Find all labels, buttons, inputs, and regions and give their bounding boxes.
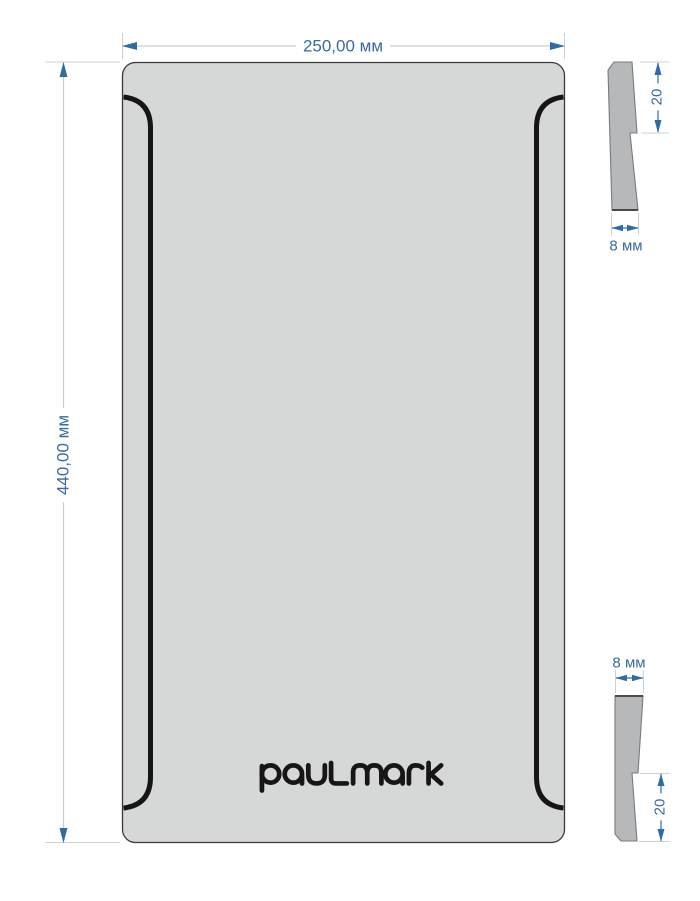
arrow-width-left bbox=[122, 42, 137, 50]
arrow-top-lip-down bbox=[655, 120, 662, 133]
arrow-height-bottom bbox=[60, 828, 68, 843]
arrow-bot-thick-left bbox=[616, 675, 628, 681]
technical-drawing-canvas: 250,00 мм 440,00 мм 20 8 мм 8 мм 20 paul… bbox=[0, 0, 700, 901]
bottom-profile-thickness-dimension-label: 8 мм bbox=[607, 655, 650, 672]
arrow-top-lip-up bbox=[655, 62, 662, 75]
arrow-width-right bbox=[550, 42, 565, 50]
plate-width-dimension-label: 250,00 мм bbox=[296, 36, 390, 57]
plate-outline bbox=[123, 63, 565, 843]
profile-bottom-right bbox=[615, 696, 643, 841]
top-profile-thickness-dimension-label: 8 мм bbox=[604, 238, 647, 255]
arrow-top-thick-right bbox=[627, 225, 639, 231]
arrow-bot-thick-right bbox=[632, 675, 644, 681]
arrow-height-top bbox=[60, 62, 68, 77]
arrow-top-thick-left bbox=[612, 225, 624, 231]
plate-height-dimension-label: 440,00 мм bbox=[53, 408, 74, 502]
bottom-profile-lip-dimension-label: 20 bbox=[652, 794, 669, 821]
arrow-bot-lip-down bbox=[658, 829, 665, 842]
profile-bottom-shape bbox=[615, 696, 643, 841]
profile-top-shape bbox=[608, 62, 638, 210]
plate-top-view bbox=[123, 63, 565, 843]
drawing-svg bbox=[0, 0, 700, 901]
profile-top-right bbox=[608, 62, 638, 210]
arrow-bot-lip-up bbox=[658, 774, 665, 787]
top-profile-lip-dimension-label: 20 bbox=[649, 84, 666, 111]
